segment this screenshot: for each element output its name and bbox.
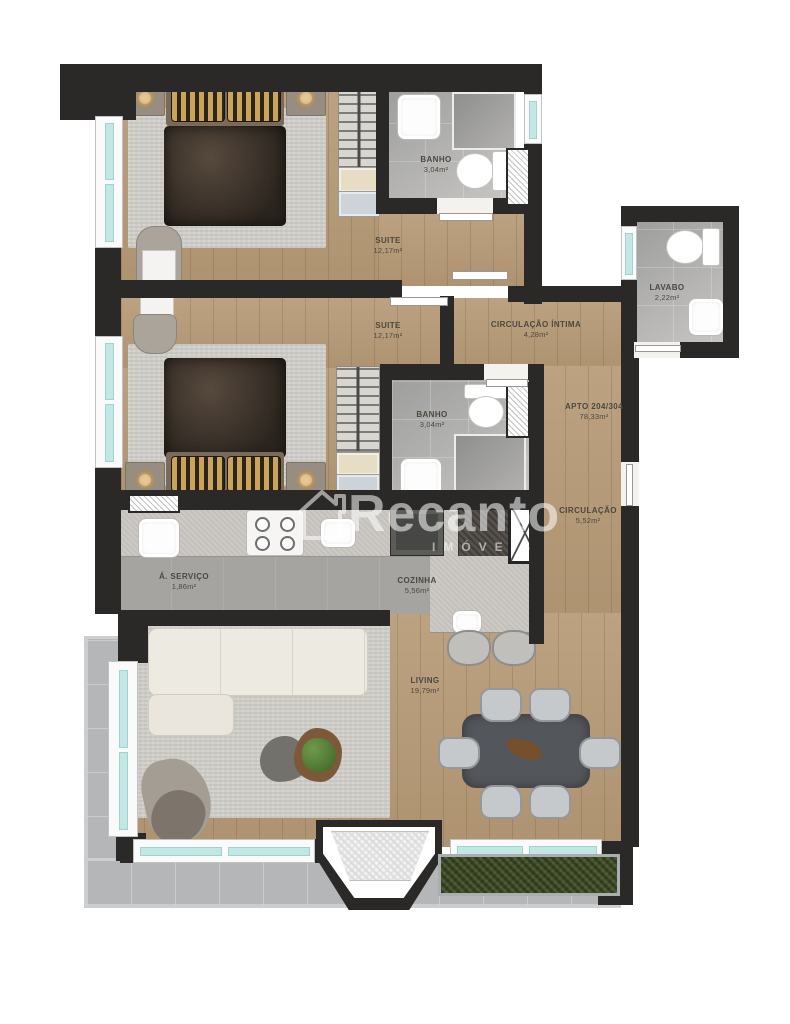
window-glass (105, 184, 114, 242)
wall-segment (440, 296, 454, 370)
door-lavabo (635, 345, 681, 352)
wall-segment (118, 615, 148, 663)
toilet-banho2 (460, 384, 510, 426)
room-label-suite2: SUITE 12,17m² (374, 321, 403, 341)
window-glass (105, 343, 114, 400)
wall-segment (95, 464, 121, 614)
wall-segment (723, 206, 739, 358)
door-banho1 (439, 213, 493, 221)
plant (302, 738, 336, 772)
apartment-label: APTO 204/304 78,33m² (565, 402, 623, 422)
window-suite1 (95, 116, 123, 248)
room-label-banho1: BANHO 3,04m² (420, 155, 451, 175)
closet-drawer-suite1 (338, 191, 380, 217)
chair-suite2 (133, 314, 177, 354)
door-suite1 (452, 271, 508, 280)
bar-stool (447, 630, 491, 666)
wall-segment (621, 206, 739, 222)
room-label-living: LIVING 19,79m² (410, 676, 439, 696)
dining-chair (438, 737, 480, 769)
vent-shaft-banho2 (506, 382, 530, 438)
kitchen-sink (320, 518, 356, 548)
bed-suite1 (164, 126, 286, 226)
toilet-bowl (468, 396, 504, 428)
kitchen-island (430, 556, 534, 633)
burner (255, 536, 270, 551)
shower-banho2 (454, 434, 526, 498)
burner (255, 517, 270, 532)
toilet-bowl (666, 230, 704, 264)
window-glass (105, 123, 114, 180)
hedge-planter (438, 854, 620, 896)
vent-servico (128, 494, 180, 513)
window-glass (119, 670, 128, 748)
wall-segment (376, 64, 389, 200)
room-label-suite1: SUITE 12,17m² (374, 236, 403, 256)
pillow (227, 456, 281, 492)
door-opening-banho1 (437, 198, 493, 214)
window-glass (529, 101, 537, 139)
window-banho1 (524, 94, 542, 144)
wall-segment (95, 280, 402, 298)
room-label-circulacao: CIRCULAÇÃO 5,52m² (559, 506, 617, 526)
floor-plan: BANHO 3,04m² SUITE 12,17m² SUITE 12,17m²… (0, 0, 790, 1024)
toilet-tank (702, 228, 720, 266)
lamp (136, 471, 154, 489)
door-banho2 (486, 379, 528, 387)
closet-rack-suite1 (338, 83, 380, 169)
wall-segment (95, 64, 542, 92)
vent-shaft-banho1 (506, 148, 530, 206)
window-glass (105, 404, 114, 462)
sofa (148, 628, 368, 696)
closet-shelf-suite2 (336, 452, 380, 476)
toilet-bowl (456, 153, 494, 189)
window-glass (119, 752, 128, 830)
burner (280, 517, 295, 532)
pillow (171, 456, 225, 492)
window-living-bottom-left (133, 839, 315, 863)
bed-suite2 (164, 358, 286, 458)
door-opening-banho2 (484, 364, 528, 380)
sink-banho1 (397, 94, 441, 140)
room-label-banho2: BANHO 3,04m² (416, 410, 447, 430)
cooktop (246, 510, 304, 556)
window-lavabo (621, 226, 637, 280)
sofa-chaise (148, 694, 234, 736)
dining-chair (579, 737, 621, 769)
shower-banho1 (452, 92, 516, 150)
wall-segment (118, 610, 390, 626)
window-glass (228, 847, 310, 856)
window-glass (140, 847, 222, 856)
window-living-left (108, 661, 138, 837)
closet-shelf-suite1 (338, 167, 380, 193)
room-label-circulacao-intima: CIRCULAÇÃO ÍNTIMA 4,28m² (491, 320, 581, 340)
dining-chair (480, 688, 522, 722)
lamp (297, 471, 315, 489)
fridge (458, 508, 510, 558)
burner (280, 536, 295, 551)
window-suite2 (95, 336, 123, 468)
dining-chair (529, 688, 571, 722)
door-entry (626, 464, 633, 506)
wall-segment (621, 358, 639, 847)
room-label-cozinha: COZINHA 5,56m² (397, 576, 436, 596)
sink-lavabo (688, 298, 724, 336)
toilet-lavabo (666, 228, 720, 266)
door-suite2 (390, 297, 448, 306)
dining-chair (529, 785, 571, 819)
oven (390, 508, 444, 556)
window-glass (625, 233, 633, 275)
wall-segment (380, 364, 392, 510)
closet-rack-suite2 (336, 366, 380, 452)
room-label-lavabo: LAVABO 2,22m² (650, 283, 685, 303)
room-label-servico: Á. SERVIÇO 1,86m² (159, 572, 209, 592)
dining-chair (480, 785, 522, 819)
laundry-tub (138, 518, 180, 558)
toilet-banho1 (456, 150, 510, 190)
